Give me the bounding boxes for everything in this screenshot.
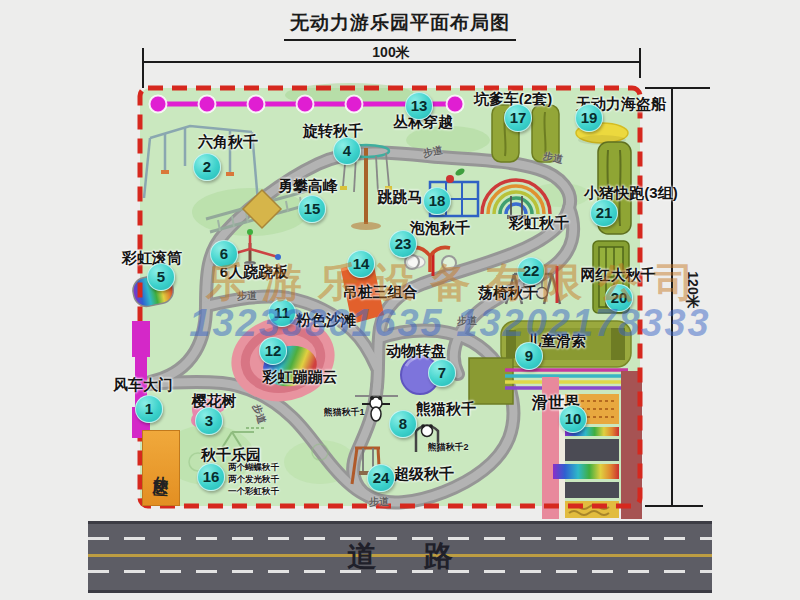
badge-1: 1 xyxy=(135,395,163,423)
label-panda-swing: 熊猫秋千 xyxy=(416,400,476,419)
badge-19: 19 xyxy=(575,104,603,132)
badge-10: 10 xyxy=(559,405,587,433)
swing-note-3: 一个彩虹秋千 xyxy=(228,486,279,498)
swing-note-1: 两个蝴蝶秋千 xyxy=(228,462,279,474)
badge-2: 2 xyxy=(193,153,221,181)
park-layout-plan: 无动力游乐园平面布局图 100米 120米 休憩区 风车大门 六角秋千 樱花树 … xyxy=(0,0,800,600)
badge-24: 24 xyxy=(367,464,395,492)
label-jumping-horse: 跳跳马 xyxy=(378,188,423,207)
page-title: 无动力游乐园平面布局图 xyxy=(284,10,516,41)
road: 道路 xyxy=(88,521,712,593)
label-climbing-peak: 勇攀高峰 xyxy=(278,177,338,196)
label-super-swing: 超级秋千 xyxy=(394,465,454,484)
badge-9: 9 xyxy=(515,342,543,370)
badge-3: 3 xyxy=(195,407,223,435)
badge-16: 16 xyxy=(197,463,225,491)
road-label-text: 道路 xyxy=(347,540,501,572)
label-rotating-swing: 旋转秋千 xyxy=(303,122,363,141)
walkway-label: 步道 xyxy=(369,495,389,509)
badge-21: 21 xyxy=(590,199,618,227)
badge-15: 15 xyxy=(298,195,326,223)
label-bubble-swing: 泡泡秋千 xyxy=(410,219,470,238)
label-hexagon-swing: 六角秋千 xyxy=(198,133,258,152)
badge-8: 8 xyxy=(389,410,417,438)
badge-7: 7 xyxy=(428,359,456,387)
badge-17: 17 xyxy=(504,104,532,132)
swing-note-2: 两个发光秋千 xyxy=(228,474,279,486)
dimension-width-label: 100米 xyxy=(372,44,409,62)
road-label: 道路 xyxy=(347,537,453,577)
badge-13: 13 xyxy=(405,92,433,120)
badge-5: 5 xyxy=(147,263,175,291)
label-bounce-cloud: 彩虹蹦蹦云 xyxy=(263,368,338,387)
badge-4: 4 xyxy=(333,137,361,165)
label-windmill-gate: 风车大门 xyxy=(113,376,173,395)
rest-area-box: 休憩区 xyxy=(142,430,180,506)
label-panda-swing-1: 熊猫秋千1 xyxy=(323,406,364,419)
watermark-phone: 13233861635 13202178333 xyxy=(189,302,711,345)
badge-18: 18 xyxy=(423,187,451,215)
rest-area-label: 休憩区 xyxy=(151,463,171,473)
label-rainbow-swing: 彩虹秋千 xyxy=(509,214,569,233)
label-panda-swing-2: 熊猫秋千2 xyxy=(427,441,468,454)
